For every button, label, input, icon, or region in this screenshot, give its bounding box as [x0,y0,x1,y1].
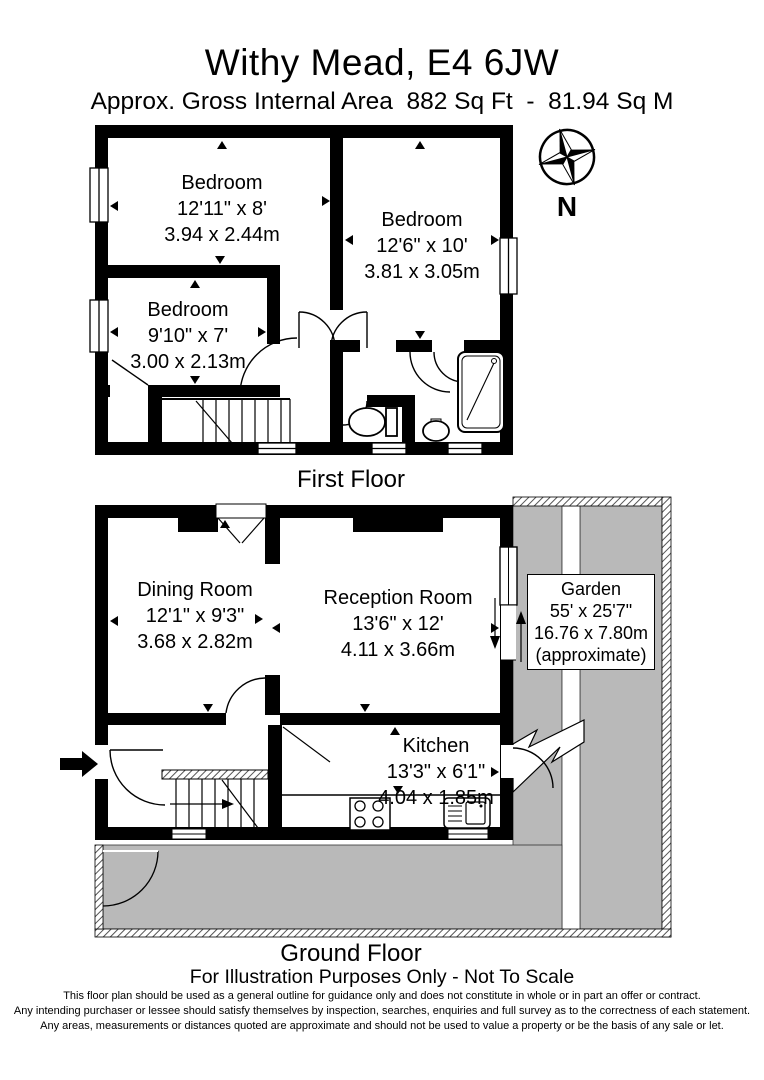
room-label-bedroom-3: Bedroom 9'10" x 7' 3.00 x 2.13m [93,297,283,375]
garden-path [562,506,580,936]
garden-size-imperial: 55' x 25'7" [528,600,654,622]
room-size-metric: 4.11 x 3.66m [298,637,498,663]
front-garden [103,845,562,929]
ground-floor-stairs [162,770,268,828]
entry-arrow-icon [60,751,98,777]
garden-name: Garden [528,578,654,600]
room-size-imperial: 12'1" x 9'3" [95,603,295,629]
toilet-icon [349,408,385,436]
room-name: Bedroom [93,297,283,323]
room-size-metric: 4.04 x 1.85m [336,785,536,811]
basin-icon [423,421,449,441]
compass-rose-icon: N [531,121,602,222]
first-floor-stairs [162,399,290,443]
toilet-cistern-icon [386,408,397,436]
disclaimer-line-3: Any areas, measurements or distances quo… [0,1019,764,1034]
garden-note: (approximate) [528,644,654,666]
first-floor-caption: First Floor [95,466,607,494]
room-label-dining-room: Dining Room 12'1" x 9'3" 3.68 x 2.82m [95,577,295,655]
room-name: Reception Room [298,585,498,611]
room-label-reception-room: Reception Room 13'6" x 12' 4.11 x 3.66m [298,585,498,663]
room-name: Bedroom [332,207,512,233]
room-size-metric: 3.94 x 2.44m [122,222,322,248]
disclaimer-text: This floor plan should be used as a gene… [0,989,764,1034]
room-size-metric: 3.81 x 3.05m [332,259,512,285]
disclaimer-line-1: This floor plan should be used as a gene… [0,989,764,1004]
room-name: Dining Room [95,577,295,603]
room-size-imperial: 12'11" x 8' [122,196,322,222]
room-size-imperial: 13'3" x 6'1" [336,759,536,785]
floorplan-page: N Withy Mead, E4 6JW Approx. Gross Inter… [0,0,764,1080]
floor-plan-drawing: N [0,0,764,1080]
room-size-metric: 3.00 x 2.13m [93,349,283,375]
room-name: Bedroom [122,170,322,196]
room-size-imperial: 9'10" x 7' [93,323,283,349]
scale-footnote: For Illustration Purposes Only - Not To … [0,966,764,989]
garden-size-metric: 16.76 x 7.80m [528,622,654,644]
room-label-bedroom-1: Bedroom 12'11" x 8' 3.94 x 2.44m [122,170,322,248]
page-title: Withy Mead, E4 6JW [0,42,764,84]
room-label-kitchen: Kitchen 13'3" x 6'1" 4.04 x 1.85m [336,733,536,811]
garden-label-box: Garden 55' x 25'7" 16.76 x 7.80m (approx… [527,574,655,670]
page-subtitle: Approx. Gross Internal Area 882 Sq Ft - … [0,88,764,116]
disclaimer-line-2: Any intending purchaser or lessee should… [0,1004,764,1019]
ground-floor-caption: Ground Floor [95,940,607,968]
compass-north-label: N [557,191,577,222]
room-size-imperial: 13'6" x 12' [298,611,498,637]
room-name: Kitchen [336,733,536,759]
room-size-imperial: 12'6" x 10' [332,233,512,259]
room-label-bedroom-2: Bedroom 12'6" x 10' 3.81 x 3.05m [332,207,512,285]
room-size-metric: 3.68 x 2.82m [95,629,295,655]
